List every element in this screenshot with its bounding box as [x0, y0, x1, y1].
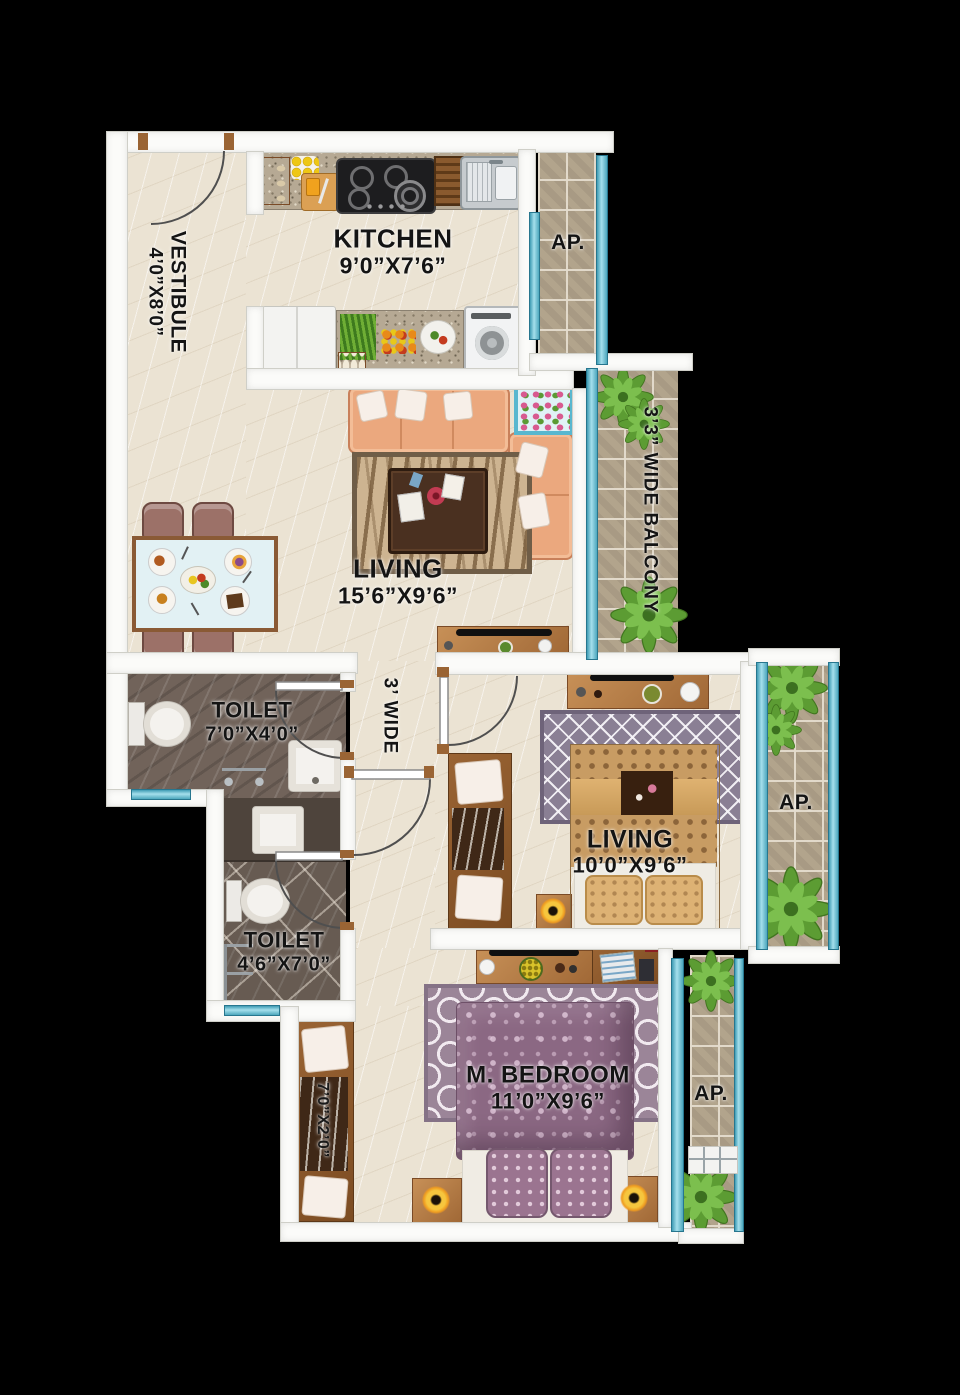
- room-name: 3’3” WIDE BALCONY: [640, 406, 661, 613]
- label-ap-bottom: AP.: [694, 1082, 728, 1106]
- label-vestibule: VESTIBULE 4’0”X8’0”: [145, 231, 190, 353]
- ap-text: AP.: [694, 1082, 728, 1105]
- label-ap-middle: AP.: [779, 791, 813, 815]
- toilet2-door-leaf: [276, 852, 342, 860]
- room-name: LIVING: [353, 554, 443, 584]
- room-name: M. BEDROOM: [466, 1061, 630, 1088]
- room-dims: 7’0”X4’0”: [205, 723, 298, 745]
- passage-door-leaf: [352, 770, 430, 779]
- label-toilet-1: TOILET 7’0”X4’0”: [205, 698, 298, 745]
- room-name: TOILET: [244, 927, 325, 952]
- bedroom-door-leaf: [440, 677, 448, 745]
- label-passage: 3’ WIDE: [379, 678, 400, 755]
- ap-text: AP.: [779, 791, 813, 814]
- label-master-bedroom: M. BEDROOM 11’0”X9’6”: [466, 1062, 630, 1114]
- room-name: TOILET: [212, 697, 293, 722]
- label-balcony: 3’3” WIDE BALCONY: [639, 406, 660, 613]
- room-dims: 11’0”X9’6”: [466, 1089, 630, 1114]
- ap-text: AP.: [551, 231, 585, 254]
- room-dims: 4’6”X7’0”: [237, 953, 330, 975]
- room-name: LIVING: [587, 826, 673, 854]
- room-dims: 7’0”X2’0”: [314, 1082, 331, 1158]
- passage-door-swing: [354, 779, 430, 855]
- bedroom-door-swing: [448, 676, 517, 745]
- room-dims: 10’0”X9’6”: [572, 854, 687, 879]
- room-dims: 9’0”X7’6”: [333, 254, 452, 280]
- door-overlay: [0, 0, 960, 1395]
- label-ap-top: AP.: [551, 231, 585, 255]
- toilet1-door-leaf: [276, 682, 342, 690]
- room-dims: 4’0”X8’0”: [145, 231, 166, 353]
- label-kitchen: KITCHEN 9’0”X7’6”: [333, 225, 452, 280]
- label-wardrobe-dims: 7’0”X2’0”: [313, 1082, 331, 1158]
- room-name: VESTIBULE: [166, 231, 189, 353]
- room-dims: 15’6”X9’6”: [338, 584, 458, 610]
- room-name: KITCHEN: [333, 224, 452, 254]
- entrance-door-swing: [151, 151, 224, 224]
- room-name: 3’ WIDE: [380, 678, 401, 755]
- label-toilet-2: TOILET 4’6”X7’0”: [237, 928, 330, 975]
- door-leaves: [276, 677, 448, 860]
- label-living: LIVING 15’6”X9’6”: [338, 555, 458, 610]
- label-bedroom: LIVING 10’0”X9’6”: [572, 826, 687, 879]
- floor-plan: VESTIBULE 4’0”X8’0” KITCHEN 9’0”X7’6” AP…: [0, 0, 960, 1395]
- toilet2-door-swing: [276, 860, 344, 928]
